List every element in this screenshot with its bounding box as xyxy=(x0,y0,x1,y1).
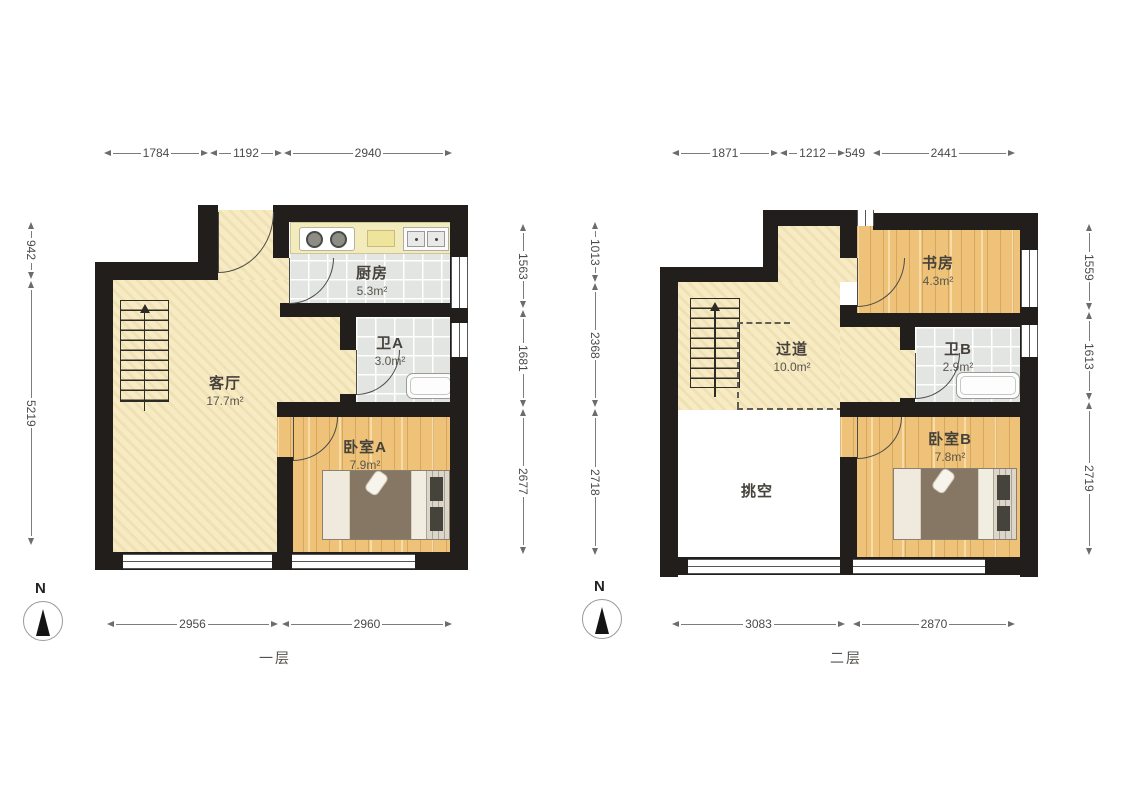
void-opening-dashed-line xyxy=(737,322,739,408)
dim-left: 942 xyxy=(24,222,38,279)
floor2-title: 二层 xyxy=(668,648,1024,668)
wall xyxy=(840,457,857,557)
wall xyxy=(277,402,468,417)
bed-bedroomB xyxy=(893,468,1017,540)
dim-top: 1212 xyxy=(780,146,845,160)
compass-needle-icon xyxy=(595,607,609,634)
dim-right: 1563 xyxy=(516,224,530,308)
wall xyxy=(273,222,289,258)
dim-right: 1681 xyxy=(516,310,530,407)
wall xyxy=(95,262,215,280)
window xyxy=(1021,250,1038,307)
wall xyxy=(95,262,113,570)
compass-needle-icon xyxy=(36,609,50,636)
wall xyxy=(277,457,293,552)
window xyxy=(1021,325,1038,357)
sink-basin-icon xyxy=(407,231,425,247)
dim-top: 1871 xyxy=(672,146,778,160)
wall xyxy=(873,213,1038,230)
bathtub-B xyxy=(956,372,1020,399)
window xyxy=(292,554,415,569)
compass-icon xyxy=(582,599,622,639)
wall xyxy=(273,205,450,222)
bed-sheet xyxy=(411,471,427,539)
room-label-void: 挑空 xyxy=(717,480,797,501)
dim-left: 2368 xyxy=(588,283,602,407)
folded-blanket xyxy=(430,477,443,501)
stove-icon xyxy=(299,227,355,251)
wall xyxy=(660,267,765,282)
sink-basin-icon xyxy=(427,231,445,247)
room-label-hallway: 过道 10.0m² xyxy=(752,338,832,374)
bed-sheet xyxy=(894,469,921,539)
window xyxy=(123,554,272,569)
north-label: N xyxy=(35,580,46,597)
kitchen-counter xyxy=(290,222,452,254)
dim-left: 5219 xyxy=(24,281,38,545)
floor1-stairs xyxy=(120,300,169,402)
wall xyxy=(660,267,678,577)
room-label-bedroomA: 卧室A 7.9m² xyxy=(320,436,410,472)
void-opening-dashed-line xyxy=(737,408,853,410)
room-label-bedroomB: 卧室B 7.8m² xyxy=(905,428,995,464)
wall xyxy=(763,210,857,226)
stair-up-arrow-icon xyxy=(710,302,720,311)
dim-bottom: 3083 xyxy=(672,617,845,631)
void-opening-dashed-line xyxy=(737,322,790,324)
bed-sheet xyxy=(978,469,994,539)
dim-top: 1192 xyxy=(210,146,282,160)
wall xyxy=(340,317,356,350)
dim-bottom: 2870 xyxy=(853,617,1015,631)
double-sink-icon xyxy=(403,227,449,251)
dim-top: 2940 xyxy=(284,146,452,160)
window xyxy=(451,257,468,308)
stair-up-arrow-icon xyxy=(140,304,150,313)
room-label-kitchen: 厨房 5.3m² xyxy=(332,262,412,298)
dim-right: 1613 xyxy=(1082,312,1096,400)
stair-direction-line xyxy=(144,308,146,411)
floor1-title: 一层 xyxy=(97,648,453,668)
window xyxy=(688,559,840,574)
window xyxy=(857,210,874,226)
dim-top: 1784 xyxy=(104,146,208,160)
window xyxy=(451,323,468,357)
bathtub-A xyxy=(406,373,455,399)
bed-sheet xyxy=(323,471,350,539)
room-label-bathA: 卫A 3.0m² xyxy=(360,332,420,368)
dim-right: 2677 xyxy=(516,409,530,554)
burner-icon xyxy=(306,231,323,248)
wall xyxy=(840,226,857,258)
wall xyxy=(840,402,1038,417)
compass-icon xyxy=(23,601,63,641)
dim-right: 1559 xyxy=(1082,224,1096,310)
wall xyxy=(900,327,915,350)
folded-blanket xyxy=(430,507,443,531)
wall xyxy=(840,313,1038,327)
room-label-bathB: 卫B 2.9m² xyxy=(928,338,988,374)
room-label-living: 客厅 17.7m² xyxy=(165,372,285,408)
wall xyxy=(198,205,218,280)
folded-blanket xyxy=(997,475,1010,500)
dim-left: 2718 xyxy=(588,409,602,555)
dim-top: 2441 xyxy=(873,146,1015,160)
floorplan-canvas: 客厅 17.7m² 厨房 5.3m² 卫A 3.0m² 卧室A 7.9m² 17… xyxy=(0,0,1125,800)
stair-direction-line xyxy=(714,306,716,397)
dim-bottom: 2956 xyxy=(107,617,278,631)
north-label: N xyxy=(594,578,605,595)
floor2-stairs xyxy=(690,298,740,388)
window xyxy=(853,559,985,574)
dim-bottom: 2960 xyxy=(282,617,452,631)
dim-top: 549 xyxy=(845,146,873,160)
folded-blanket xyxy=(997,506,1010,531)
dim-left: 1013 xyxy=(588,222,602,282)
wall xyxy=(840,305,857,313)
wall xyxy=(280,303,468,317)
counter-module-icon xyxy=(367,230,395,247)
burner-icon xyxy=(330,231,347,248)
room-label-study: 书房 4.3m² xyxy=(898,252,978,288)
dim-right: 2719 xyxy=(1082,402,1096,555)
bed-bedroomA xyxy=(322,470,450,540)
